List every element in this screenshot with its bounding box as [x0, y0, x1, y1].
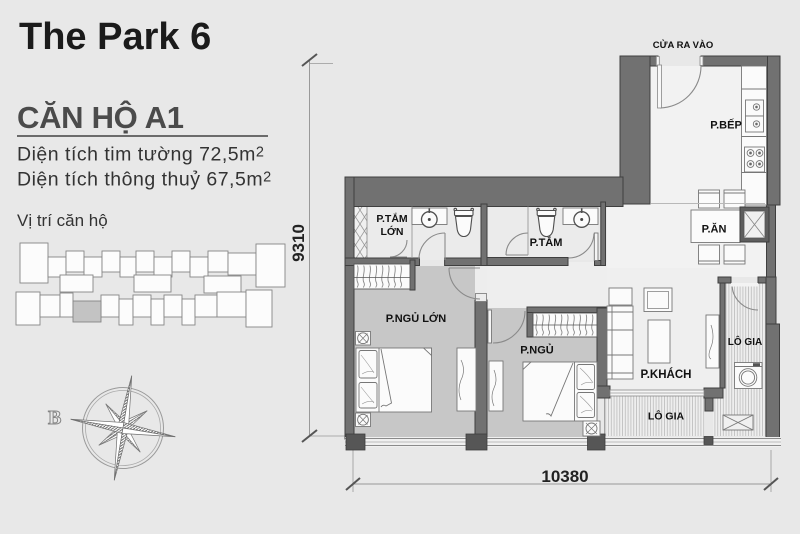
svg-text:P.ĂN: P.ĂN [702, 223, 727, 236]
svg-text:P.BẾP: P.BẾP [710, 119, 742, 132]
svg-text:P.KHÁCH: P.KHÁCH [641, 368, 692, 381]
svg-text:P.TẮM: P.TẮM [530, 236, 563, 249]
svg-text:LỚN: LỚN [381, 225, 404, 238]
svg-text:The Park 6: The Park 6 [19, 16, 211, 58]
svg-text:P.TẮM: P.TẮM [376, 212, 408, 225]
svg-text:P.NGỦ: P.NGỦ [520, 344, 553, 357]
svg-text:Diện tích thông thuỷ 67,5m2: Diện tích thông thuỷ 67,5m2 [17, 169, 272, 191]
svg-text:Vị trí căn hộ: Vị trí căn hộ [17, 211, 108, 230]
svg-text:CĂN HỘ A1: CĂN HỘ A1 [17, 99, 184, 135]
svg-text:LÔ GIA: LÔ GIA [648, 410, 685, 423]
svg-text:10380: 10380 [541, 467, 588, 486]
svg-text:Diện tích tim tường 72,5m2: Diện tích tim tường 72,5m2 [17, 144, 264, 166]
svg-text:P.NGỦ LỚN: P.NGỦ LỚN [386, 312, 447, 325]
svg-text:9310: 9310 [289, 224, 308, 262]
svg-text:LÔ GIA: LÔ GIA [728, 335, 762, 348]
svg-text:B: B [48, 407, 61, 429]
svg-text:CỬA RA VÀO: CỬA RA VÀO [653, 39, 713, 51]
